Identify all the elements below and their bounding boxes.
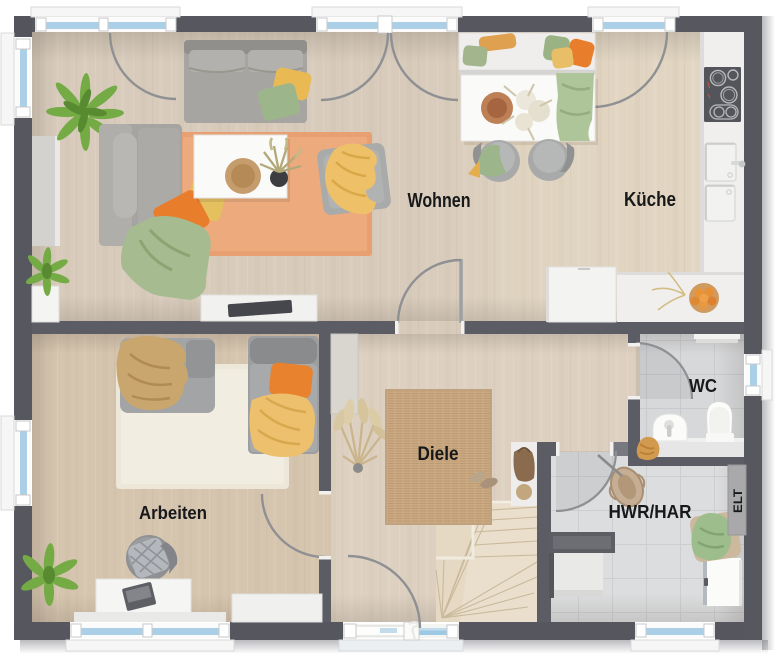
- svg-text:Küche: Küche: [624, 189, 676, 211]
- svg-text:Wohnen: Wohnen: [408, 190, 471, 212]
- svg-text:WC: WC: [689, 376, 717, 396]
- svg-text:HWR/HAR: HWR/HAR: [609, 502, 692, 522]
- svg-text:Arbeiten: Arbeiten: [139, 503, 207, 523]
- svg-text:Diele: Diele: [418, 444, 459, 465]
- svg-text:ELT: ELT: [731, 488, 745, 513]
